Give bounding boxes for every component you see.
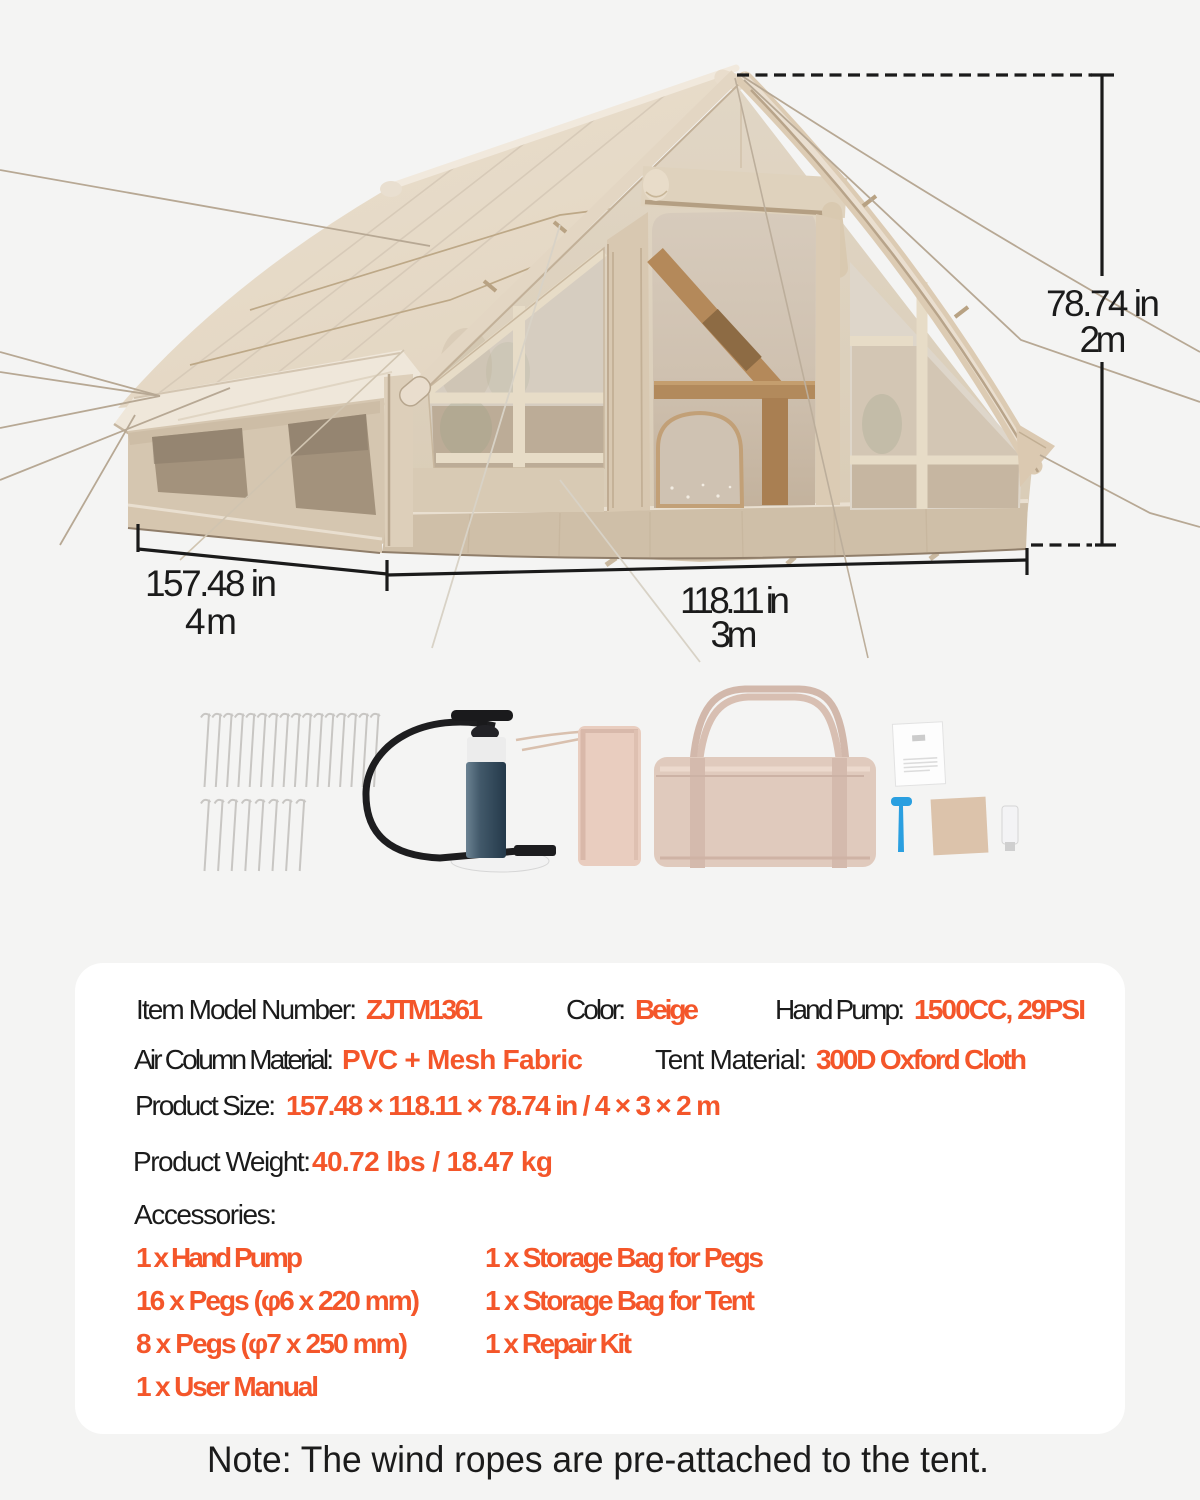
- svg-text:1 x Storage Bag for Tent: 1 x Storage Bag for Tent: [485, 1285, 755, 1316]
- svg-text:2m: 2m: [1080, 319, 1127, 360]
- svg-text:300D Oxford Cloth: 300D Oxford Cloth: [816, 1044, 1027, 1075]
- svg-text:1500CC, 29PSI: 1500CC, 29PSI: [914, 994, 1086, 1025]
- svg-text:16 x Pegs (φ6 x 220 mm): 16 x Pegs (φ6 x 220 mm): [136, 1285, 420, 1316]
- svg-text:157.48 × 118.11 × 78.74 in / 4: 157.48 × 118.11 × 78.74 in / 4 × 3 × 2 m: [286, 1090, 721, 1121]
- svg-text:1 x User Manual: 1 x User Manual: [136, 1371, 319, 1402]
- svg-text:Air Column Material:: Air Column Material:: [134, 1044, 334, 1075]
- svg-text:1 x Storage Bag for Pegs: 1 x Storage Bag for Pegs: [485, 1242, 764, 1273]
- svg-text:78.74 in: 78.74 in: [1046, 283, 1160, 324]
- svg-text:8 x Pegs (φ7 x 250 mm): 8 x Pegs (φ7 x 250 mm): [136, 1328, 408, 1359]
- svg-text:PVC + Mesh Fabric: PVC + Mesh Fabric: [342, 1044, 583, 1075]
- svg-text:Accessories:: Accessories:: [134, 1199, 277, 1230]
- svg-text:Product Size:: Product Size:: [135, 1090, 276, 1121]
- svg-text:Tent Material:: Tent Material:: [655, 1044, 807, 1075]
- svg-text:Item Model Number:: Item Model Number:: [136, 994, 357, 1025]
- svg-text:Beige: Beige: [635, 994, 699, 1025]
- svg-text:40.72 lbs / 18.47 kg: 40.72 lbs / 18.47 kg: [312, 1146, 553, 1177]
- svg-text:4m: 4m: [185, 601, 237, 642]
- svg-text:Hand Pump:: Hand Pump:: [775, 994, 905, 1025]
- svg-text:1 x Hand Pump: 1 x Hand Pump: [136, 1242, 303, 1273]
- svg-text:ZJTM1361: ZJTM1361: [366, 994, 483, 1025]
- svg-text:1 x Repair Kit: 1 x Repair Kit: [485, 1328, 632, 1359]
- svg-text:Color:: Color:: [566, 994, 626, 1025]
- svg-text:157.48 in: 157.48 in: [145, 563, 277, 604]
- svg-text:Note: The wind ropes are pre-a: Note: The wind ropes are pre-attached to…: [207, 1439, 989, 1480]
- svg-text:3m: 3m: [711, 614, 758, 655]
- svg-text:Product Weight:: Product Weight:: [133, 1146, 311, 1177]
